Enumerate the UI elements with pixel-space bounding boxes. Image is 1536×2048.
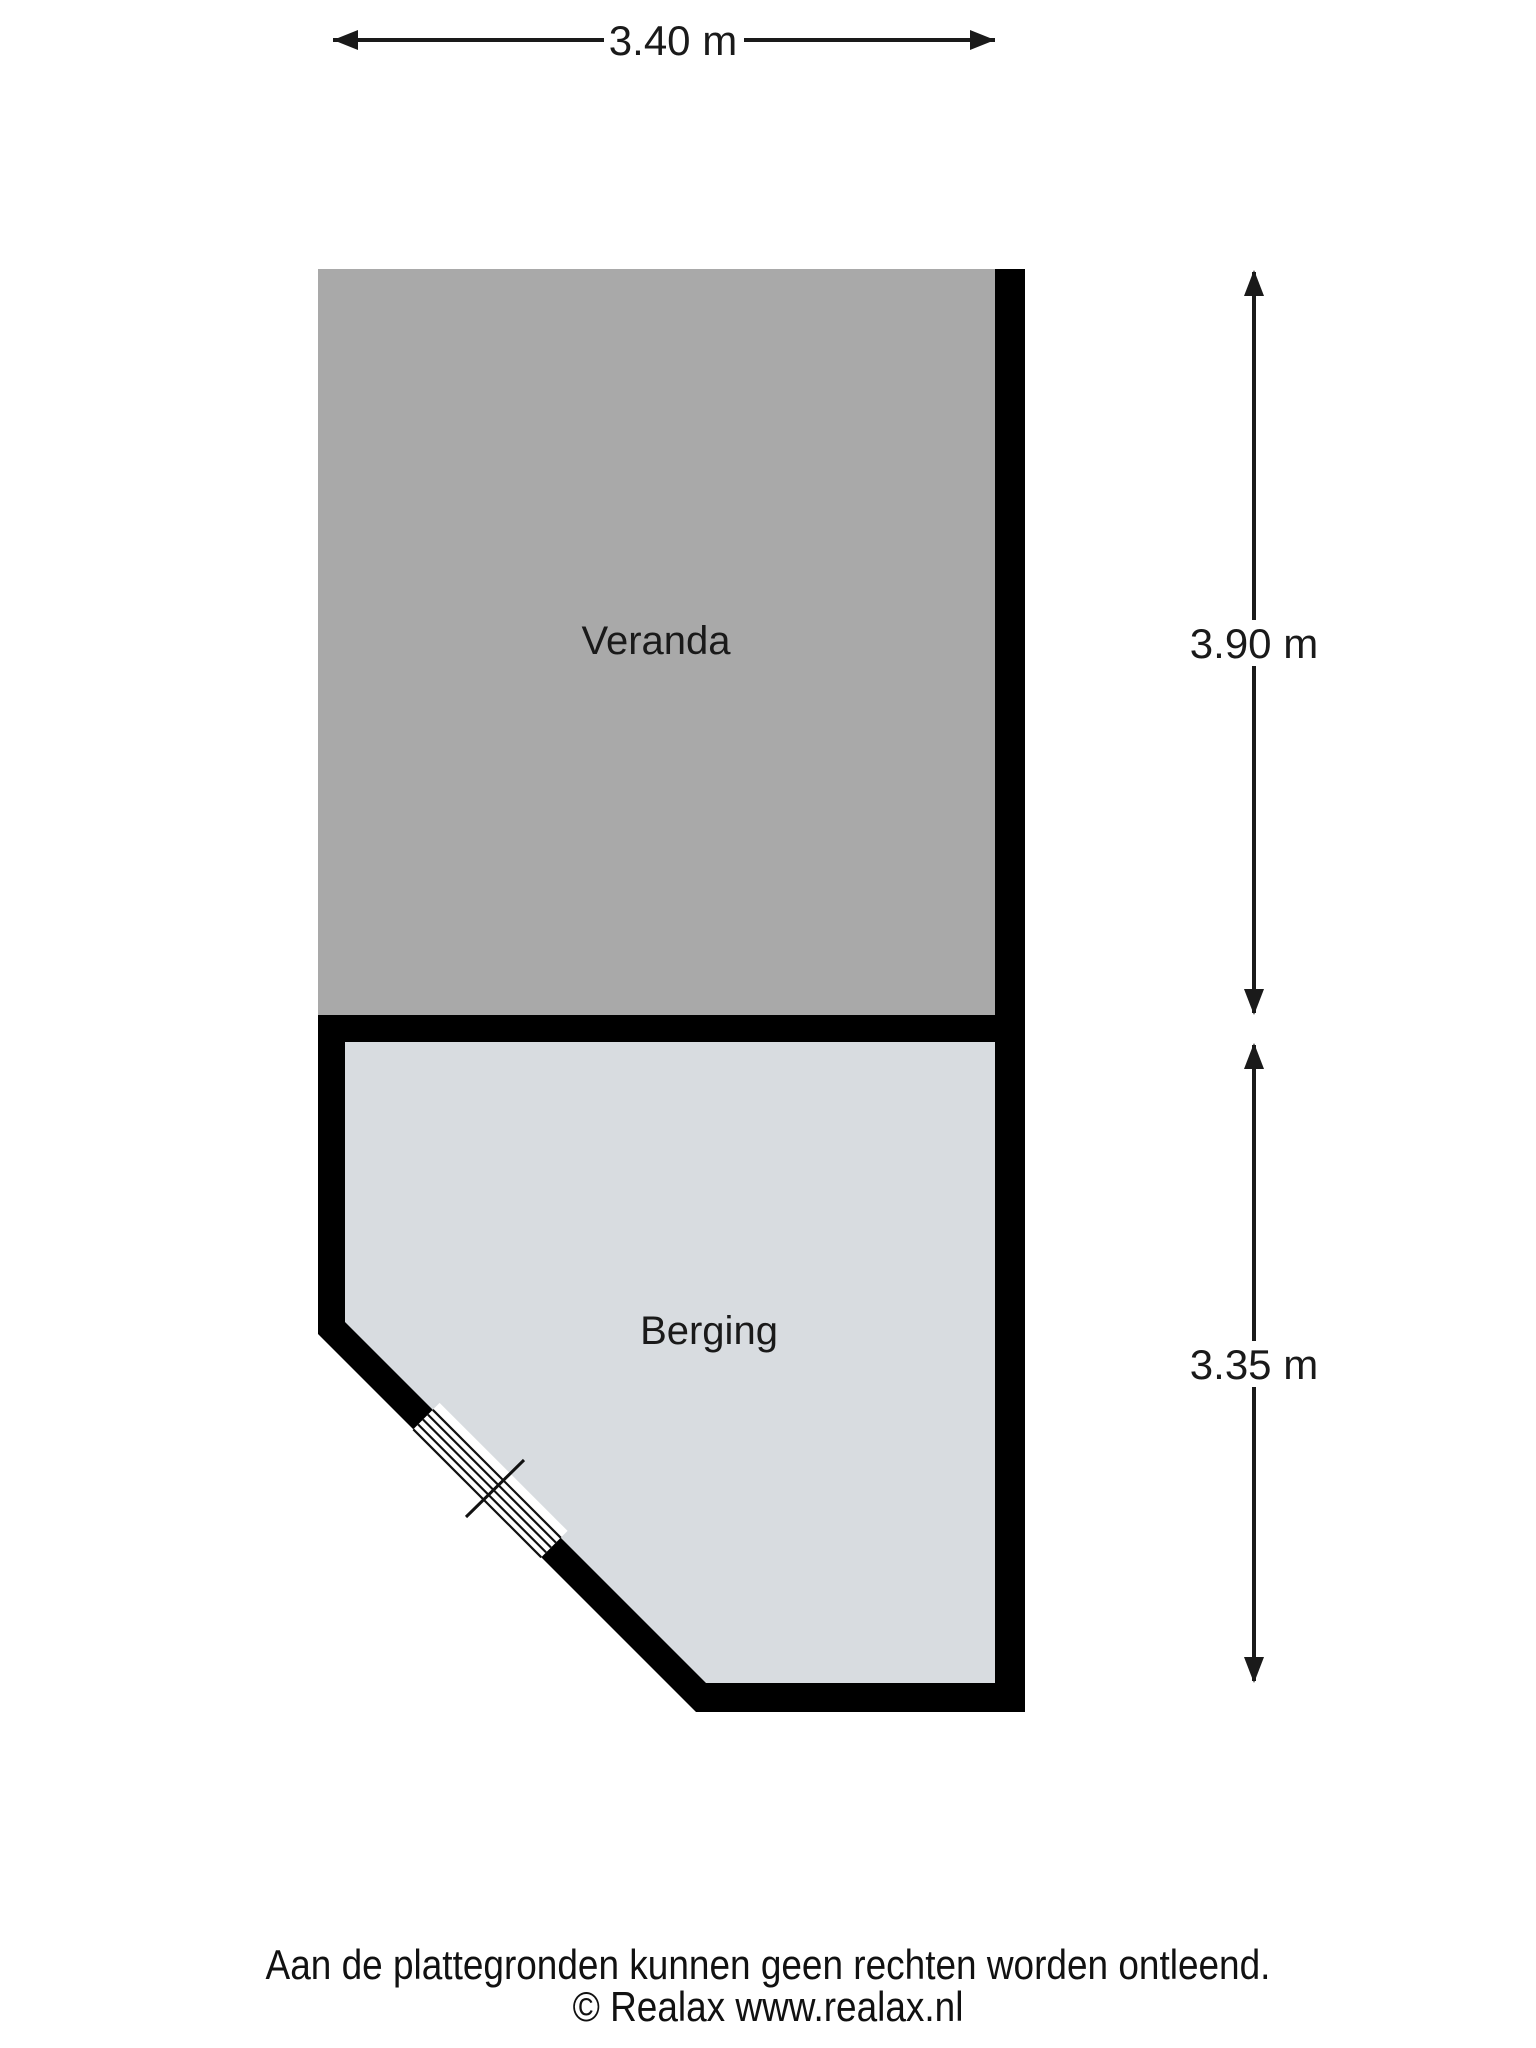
dimension-label-top-width: 3.40 m <box>609 17 737 64</box>
arrowhead-left-icon <box>333 30 358 50</box>
room-label-berging: Berging <box>640 1309 778 1353</box>
dimension-label-veranda-height: 3.90 m <box>1190 620 1318 667</box>
room-label-veranda: Veranda <box>581 619 731 663</box>
wall-divider <box>318 1015 1025 1042</box>
dimension-berging-height: 3.35 m <box>1190 1043 1318 1683</box>
berging-floor <box>345 1042 995 1683</box>
arrowhead-right-icon <box>970 30 995 50</box>
arrowhead-down-icon <box>1244 989 1264 1015</box>
floorplan-page: 3.40 m Veranda Berging <box>0 0 1536 2048</box>
arrowhead-up-icon <box>1244 270 1264 296</box>
arrowhead-up-icon <box>1244 1043 1264 1069</box>
floorplan-drawing: 3.40 m Veranda Berging <box>0 0 1536 2048</box>
dimension-veranda-height: 3.90 m <box>1190 270 1318 1015</box>
arrowhead-down-icon <box>1244 1657 1264 1683</box>
footer-disclaimer: Aan de plattegronden kunnen geen rechten… <box>266 1944 1271 1986</box>
dimension-top-width: 3.40 m <box>333 17 995 64</box>
dimension-label-berging-height: 3.35 m <box>1190 1341 1318 1388</box>
footer-copyright: © Realax www.realax.nl <box>573 1986 964 2028</box>
